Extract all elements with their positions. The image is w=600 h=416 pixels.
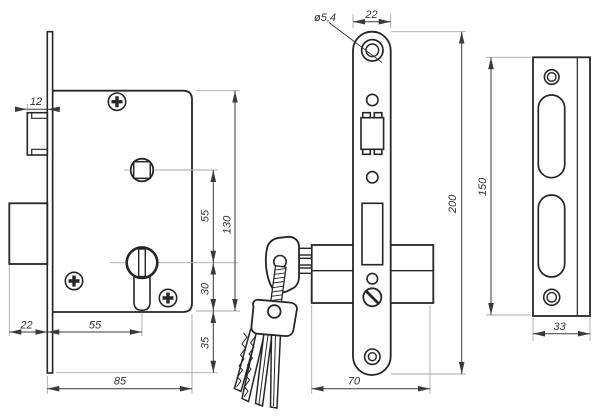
slotted-screw bbox=[363, 288, 381, 306]
dim-label-strike-length: 150 bbox=[477, 177, 489, 196]
screw-hole-bottom-inner bbox=[368, 353, 376, 361]
strike-screw-hole-top-inner bbox=[547, 73, 556, 82]
dim-label-faceplate-width: 22 bbox=[364, 9, 377, 21]
mounting-screw bbox=[108, 93, 125, 110]
dim-label-cylinder-to-case-bottom: 30 bbox=[200, 282, 212, 295]
dim-label-strike-width: 33 bbox=[553, 321, 566, 333]
dim-label-faceplate-length: 200 bbox=[447, 194, 459, 214]
dim-label-spindle-to-cylinder: 55 bbox=[200, 209, 212, 222]
dim-label-hole-diameter: ø5,4 bbox=[314, 12, 336, 24]
technical-drawing-page: 12 22 55 85 55 130 30 35 bbox=[0, 0, 600, 416]
pin-hole bbox=[367, 94, 378, 105]
key-bundle bbox=[235, 300, 297, 408]
faceplate-front-view: ø5,4 22 200 70 bbox=[235, 9, 467, 408]
deadbolt-cutout bbox=[362, 203, 383, 264]
cylinder-key-wards bbox=[298, 248, 312, 273]
latch-slot bbox=[538, 95, 564, 178]
pin-hole bbox=[367, 273, 378, 284]
strike-plate bbox=[533, 57, 590, 316]
dim-label-deadbolt-protrusion: 22 bbox=[19, 320, 32, 332]
lock-body-side-view: 12 22 55 85 55 130 30 35 bbox=[9, 32, 240, 394]
dim-label-case-depth: 85 bbox=[114, 376, 127, 388]
dim-label-body-depth: 70 bbox=[348, 376, 361, 388]
dim-label-latch-protrusion: 12 bbox=[30, 96, 42, 108]
spindle-hub bbox=[131, 159, 154, 182]
dim-label-bottom-margin: 35 bbox=[200, 336, 212, 349]
deadbolt bbox=[9, 203, 47, 264]
latch-cutout bbox=[361, 113, 384, 155]
dim-label-backset: 55 bbox=[89, 320, 102, 332]
mortise-lock-drawing: 12 22 55 85 55 130 30 35 bbox=[0, 0, 600, 416]
key-ring-hole bbox=[268, 305, 281, 318]
pin-hole bbox=[367, 172, 378, 183]
dim-label-case-height: 130 bbox=[222, 215, 234, 234]
latch-bolt bbox=[27, 113, 47, 155]
keyway-slot bbox=[139, 249, 146, 277]
mounting-screw bbox=[159, 289, 176, 306]
faceplate-strip bbox=[47, 32, 52, 373]
strike-screw-hole-bottom-inner bbox=[547, 293, 556, 302]
deadbolt-slot bbox=[538, 195, 564, 277]
strike-plate-view: 150 33 bbox=[477, 57, 590, 341]
mounting-screw bbox=[65, 272, 82, 289]
